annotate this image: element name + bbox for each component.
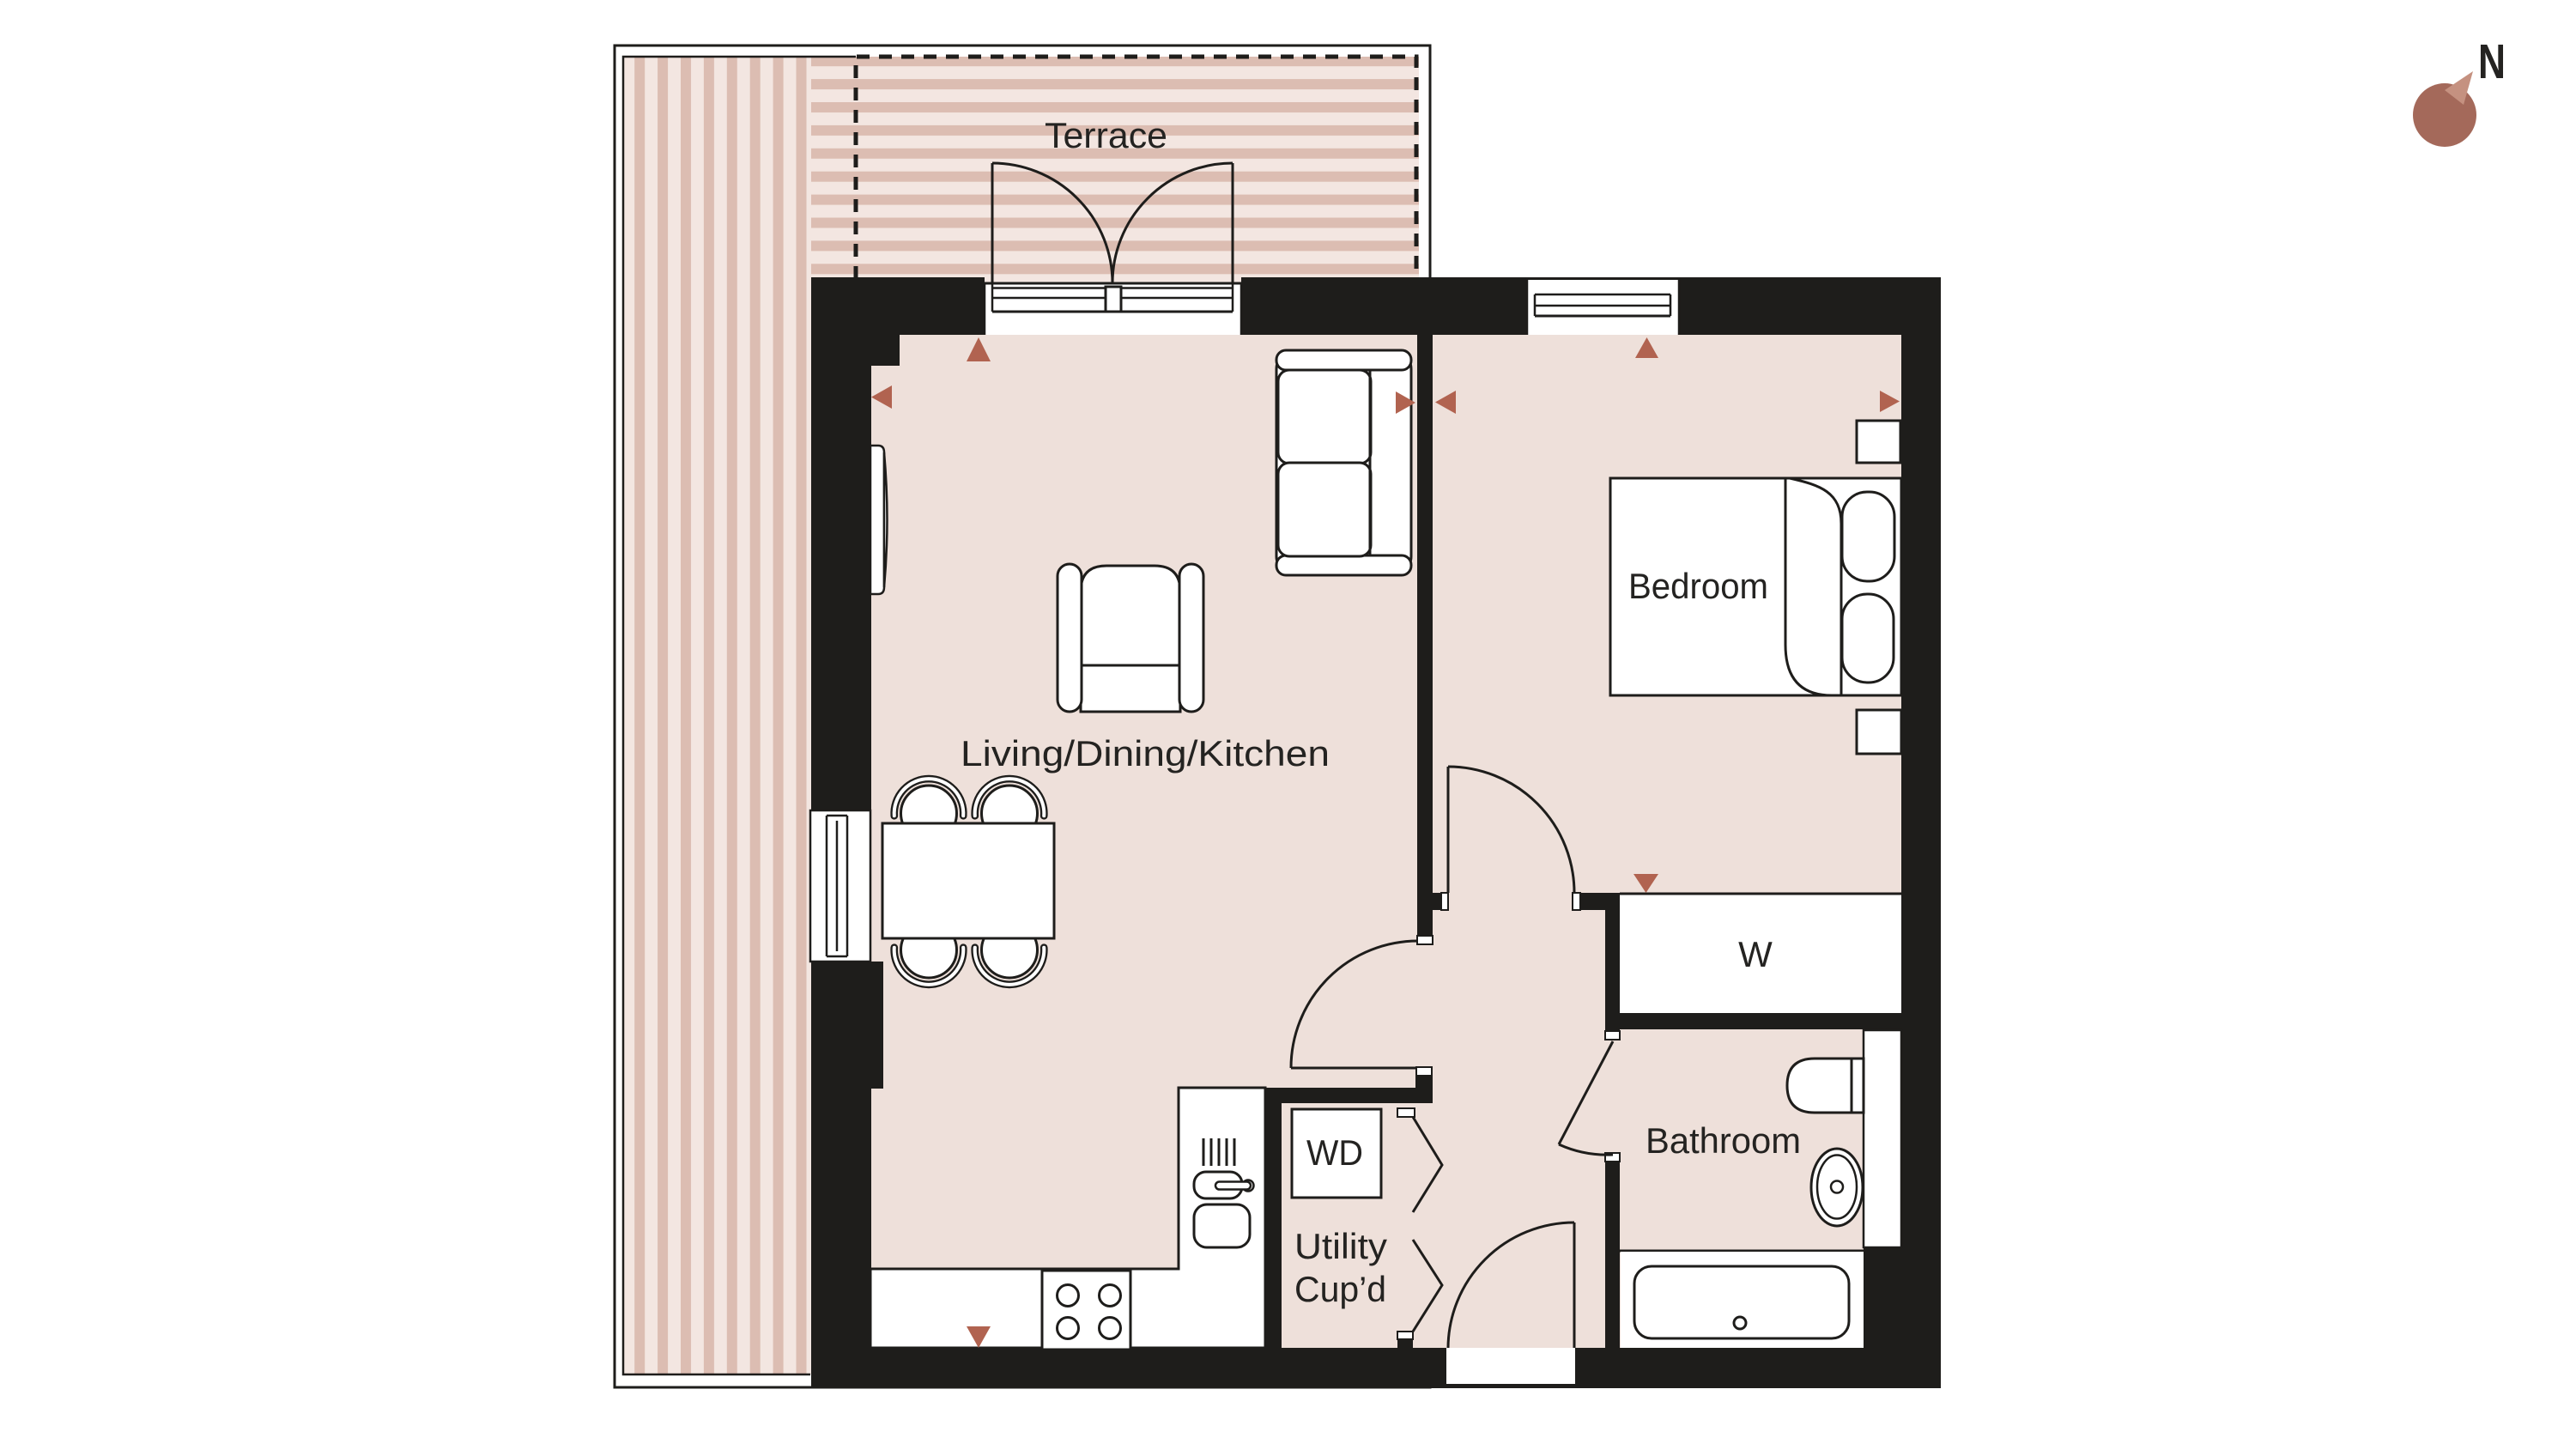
svg-text:WD: WD	[1306, 1132, 1363, 1173]
svg-text:Terrace: Terrace	[1045, 115, 1167, 155]
svg-text:Bathroom: Bathroom	[1646, 1120, 1801, 1161]
svg-text:Utility: Utility	[1294, 1226, 1387, 1266]
svg-text:Cup’d: Cup’d	[1294, 1269, 1386, 1309]
svg-text:W: W	[1738, 934, 1773, 974]
svg-text:Bedroom: Bedroom	[1628, 566, 1768, 606]
svg-text:Living/Dining/Kitchen: Living/Dining/Kitchen	[961, 733, 1330, 774]
svg-text:N: N	[2478, 34, 2506, 89]
